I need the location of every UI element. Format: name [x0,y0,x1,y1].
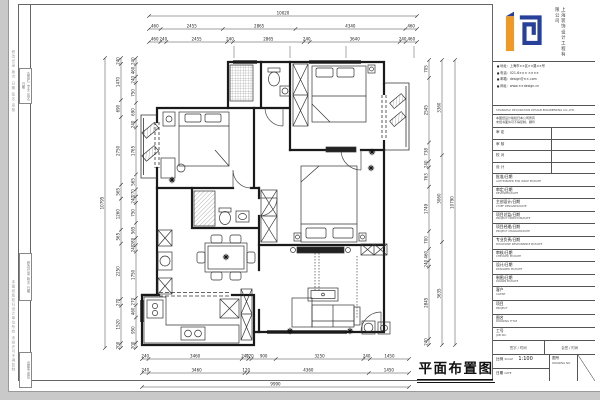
title-block: 上海装饰设计工程有限公司 地址：上海市××区××路××号电话：021-6××× … [493,4,595,381]
dim-label: 200 [131,341,136,349]
dim-label: 565 [115,187,120,195]
contact-line: 邮箱：design@××.com [497,77,591,81]
paper-sheet: 修改记录 版次 日期 签名 审核 本图纸版权归设计单位所有 未经许可不得复制 会… [8,0,600,392]
dim-label: 2750 [116,145,121,156]
dim-label: 1750 [131,269,136,280]
dim-label: 2455 [187,24,198,29]
dim-label: 4340 [345,24,356,29]
drawing-title-label-en: DRAWING TITLE [496,320,592,323]
dimension-chain: 460245528654340460 [147,24,419,31]
dim-label: 565 [131,226,136,234]
scale-row: 比例 SCALE 1:100 [493,355,549,369]
dim-label: 240 [116,57,121,65]
dim-label: 240 [131,244,136,252]
copyright-note-line2: 未经书面许可不得复制、翻印 [496,120,592,124]
dim-label: 240 [424,338,429,346]
copyright-note: 本图纸设计版权归本公司所有 未经书面许可不得复制、翻印 [493,115,595,128]
logo-row: 上海装饰设计工程有限公司 [493,4,595,62]
dim-label: 9990 [270,382,281,387]
job-no-label-en: JOB NO. [496,334,592,337]
signature-row: 批准/日期AUTHORIZED FOR ISSUE BY/DATE [493,174,595,187]
extension-lines [234,46,414,58]
dimension-chain: 2404602407506902401765565270240750565280… [131,56,138,350]
bathroom2 [194,191,249,226]
plan-title-text: 平面布置图 [419,361,494,377]
dimension-chain: 10790 [450,58,457,347]
signature-label-en: AUTHORIZED FOR ISSUE BY/DATE [496,180,592,183]
dim-label: 738 [424,148,429,156]
signature-label-en: DISCIPLINE RESPONSIBLE BY/DATE [496,243,592,246]
dim-label: 10020 [277,11,290,16]
dim-label: 240 [131,195,136,203]
title-underline-2 [417,382,495,383]
review-label: 设 计 [493,163,552,174]
dim-label: 750 [131,209,136,217]
dim-label: 900 [260,354,268,359]
dimension-chain: 10020 [147,11,419,18]
review-label: 审 核 [493,140,552,151]
scale-value: 1:100 [518,356,532,362]
dim-label: 240 [142,368,150,373]
scale-label-en: SCALE [504,357,513,361]
drawing-title-row: 图名 DRAWING TITLE [493,315,595,329]
dim-label: 270 [116,298,121,306]
company-logo-icon [495,7,547,58]
dim-label: 1450 [384,368,395,373]
dimension-chain: 9990 [140,382,411,389]
dim-label: 240 [131,120,136,128]
dimension-chain: 240346012043601450 [140,368,411,375]
dim-label: 240 [160,37,168,42]
kitchen [144,289,252,343]
signature-rows: 批准/日期AUTHORIZED FOR ISSUE BY/DATE审定/日期RE… [493,174,595,287]
bedroom2-balcony [142,123,159,162]
bedroom3 [261,147,375,242]
signature-row: 专业负责/日期DISCIPLINE RESPONSIBLE BY/DATE [493,237,595,250]
dim-label: 565 [116,232,121,240]
dim-label: 2865 [254,24,265,29]
dim-label: 240 [363,354,371,359]
dimension-chain: 240346024012090032502401450 [140,354,411,361]
dim-label: 565 [131,178,136,186]
dimension-chain: 705254573824076317497004602402845240 [424,58,431,347]
diagonal-cell [578,355,595,381]
sign-cell-right: 会签 / 时间 [545,341,596,354]
review-row: 设 计 [493,163,595,175]
master-bedroom [293,64,375,126]
review-value-cell [552,151,595,162]
drawing-no-cell: 图号 DRAWING NO. [550,355,578,381]
dim-label: 10795 [100,196,105,209]
sign-cell-left: 签字 / 时间 [493,341,545,354]
signature-label-en: DESIGNED BY/DATE [496,268,592,271]
signature-label-en: PROJECT MANAGER/DATE [496,230,592,233]
signature-label-en: PROJECT DIRECTOR/DATE [496,217,592,220]
dim-label: 240 [131,57,136,65]
review-label: 审 定 [493,128,552,139]
review-row: 校 对 [493,151,595,163]
dim-label: 240 [399,37,407,42]
signature-label-en: CHIEF DESIGNER/DATE [496,205,592,208]
signature-label-en: DRAWN BY/DATE [496,280,592,283]
review-label: 校 对 [493,151,552,162]
signature-row: 设计/日期DESIGNED BY/DATE [493,262,595,275]
dimension-chain: 460240245524028652403640240460 [147,37,419,44]
dim-label: 700 [424,236,429,244]
dimension-chain: 24014706902750565126056522502701520200 [115,56,122,350]
dining-area [158,230,255,294]
dim-label: 4360 [303,368,314,373]
dimension-chain: 10795 [100,56,107,350]
dim-label: 2250 [116,266,121,277]
dim-label: 690 [116,104,121,112]
signature-row: 项目总监/日期PROJECT DIRECTOR/DATE [493,212,595,225]
signature-row: 制图/日期DRAWN BY/DATE [493,275,595,288]
dim-label: 460 [424,250,429,258]
signature-row: 审定/日期REVIEWED/DATE [493,187,595,200]
dim-label: 750 [131,89,136,97]
dim-label: 950 [131,326,136,334]
dim-label: 2845 [424,297,429,308]
dim-label: 1765 [131,145,136,156]
date-row: 日期 DATE [493,369,549,382]
review-row: 审 核 [493,140,595,152]
dim-label: 1470 [116,76,121,87]
dim-label: 3460 [190,354,201,359]
dim-label: 240 [303,37,311,42]
company-name-vertical: 上海装饰设计工程有限公司 [553,7,565,58]
dim-label: 240 [424,160,429,168]
dim-label: 3250 [315,354,326,359]
project-label-en: PROJECT [496,307,592,310]
doors [233,108,381,332]
dim-label: 1520 [116,319,121,330]
client-label-en: CLIENT [496,293,592,296]
dim-label: 460 [151,24,159,29]
sign-cells-row: 签字 / 时间 会签 / 时间 [493,341,595,355]
dim-label: 3635 [437,288,442,299]
dim-label: 280 [131,237,136,245]
project-row: 项目 PROJECT [493,301,595,315]
dim-label: 200 [116,341,121,349]
job-no-row: 工号 JOB NO. [493,328,595,341]
master-balcony [390,94,406,127]
client-row: 客户 CLIENT [493,287,595,301]
signature-row: 审核/日期CHECKED BY/DATE [493,250,595,263]
dim-label: 763 [424,173,429,181]
dim-label: 460 [407,24,415,29]
date-label-en: DATE [504,371,511,375]
contact-line: 地址：上海市××区××路××号 [497,64,591,68]
dim-label: 3360 [437,102,442,113]
contact-line: 电话：021-6××× ×××× [497,71,591,75]
signature-row: 主创设计/日期CHIEF DESIGNER/DATE [493,199,595,212]
dim-label: 460 [131,66,136,74]
dim-label: 460 [131,307,136,315]
dim-label: 240 [131,75,136,83]
dim-label: 2455 [192,37,203,42]
dim-label: 2545 [424,105,429,116]
dim-label: 460 [407,37,415,42]
contact-line: 网址：www.××design.cn [497,84,591,88]
dim-label: 10790 [450,196,455,209]
dim-label: 1260 [116,209,121,220]
company-name-english: SHANGHAI DECORATION DESIGN ENGINEERING C… [493,106,595,115]
entry [361,244,390,334]
review-value-cell [552,140,595,151]
dim-label: 3060 [437,193,442,204]
dim-label: 270 [131,189,136,197]
walls [142,62,384,345]
dim-label: 460 [151,37,159,42]
dim-label: 3460 [192,368,203,373]
living-room [287,247,360,334]
dim-label: 2865 [263,37,274,42]
dim-label: 240 [424,259,429,267]
drawing-sheet-page: { "sheet": { "drawing_title": "平面布置图", "… [0,0,600,400]
dim-label: 240 [141,354,149,359]
review-value-cell [552,128,595,139]
signature-label-en: CHECKED BY/DATE [496,255,592,258]
dim-label: 270 [131,297,136,305]
dim-label: 1749 [424,203,429,214]
scale-label-cn: 比例 [496,357,503,361]
drawing-no-label-en: DRAWING NO. [552,361,575,365]
plan-title-block: 平面布置图 [417,357,495,382]
dimension-chain: 336030603635 [437,58,444,347]
date-label-cn: 日期 [496,371,503,375]
dim-label: 1450 [384,354,395,359]
company-contacts: 地址：上海市××区××路××号电话：021-6××× ××××邮箱：design… [493,62,595,106]
dim-label: 690 [131,108,136,116]
dim-label: 240 [226,37,234,42]
review-row: 审 定 [493,128,595,140]
title-underline-1 [417,379,495,380]
scale-drawingno-block: 比例 SCALE 1:100 日期 DATE 图号 DRAWING NO. [493,355,595,381]
review-value-cell [552,163,595,174]
bedroom2 [161,112,229,183]
dim-label: 705 [424,65,429,73]
dim-label: 3640 [350,37,361,42]
signature-row: 项目经理/日期PROJECT MANAGER/DATE [493,224,595,237]
signature-label-en: REVIEWED/DATE [496,192,592,195]
review-rows: 审 定审 核校 对设 计 [493,128,595,174]
